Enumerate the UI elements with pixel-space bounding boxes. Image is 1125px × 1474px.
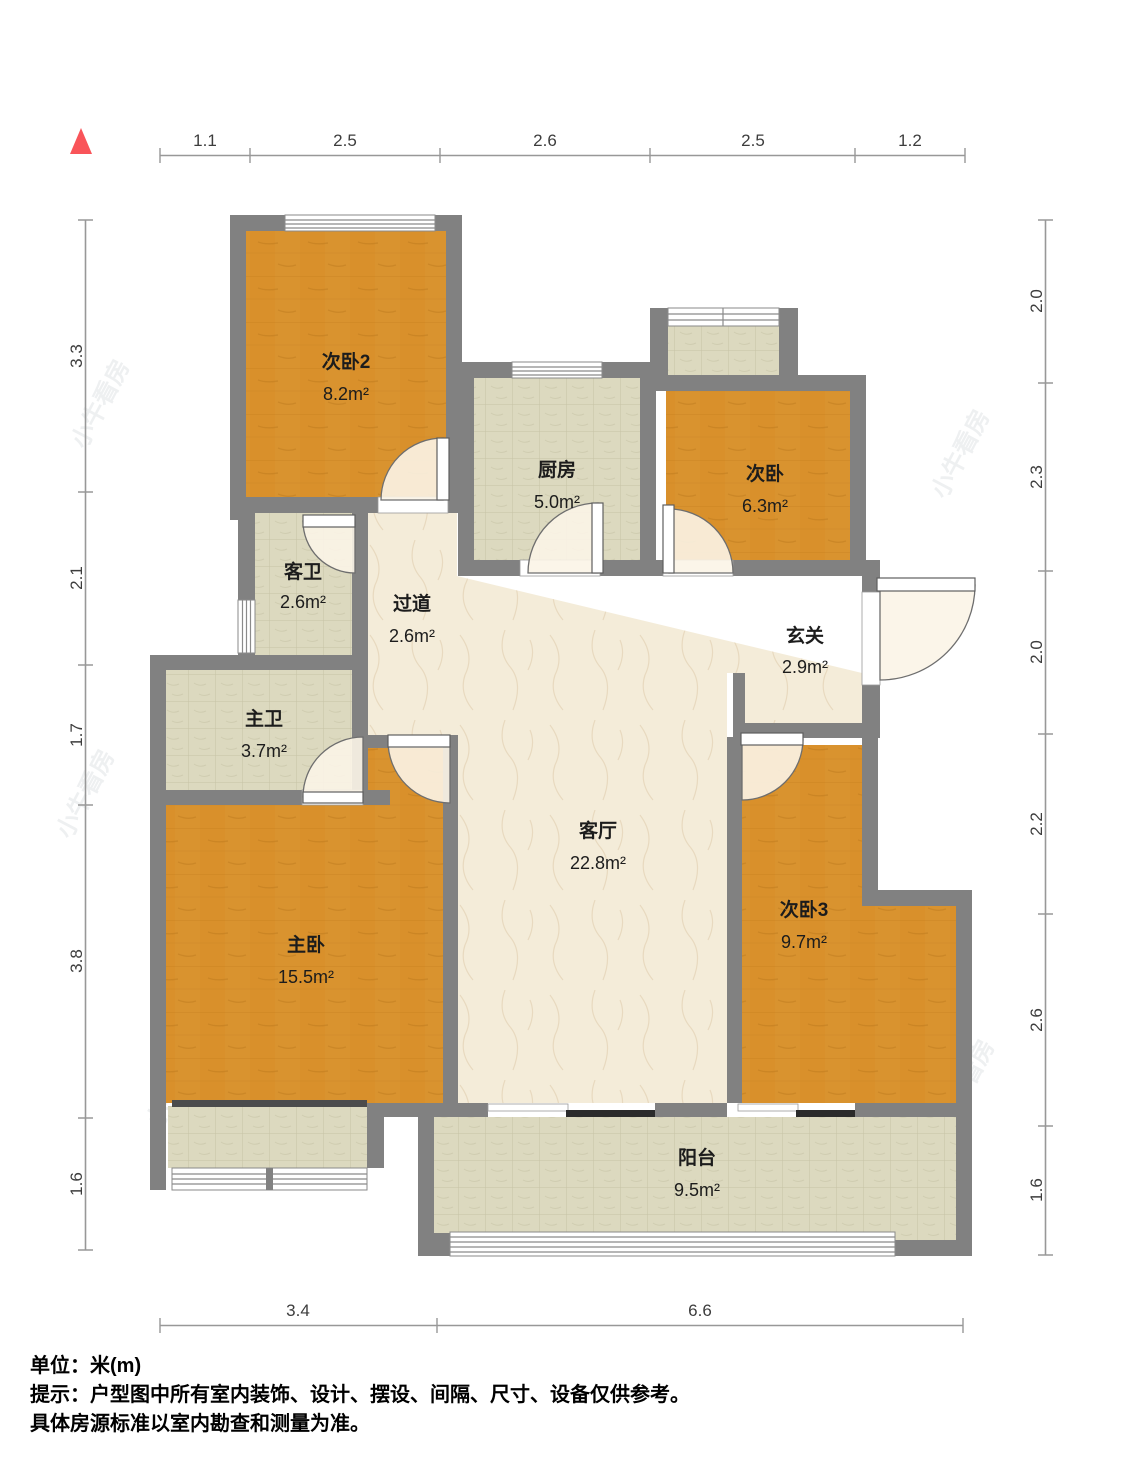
dim-top-1: 2.5 bbox=[333, 131, 357, 150]
room-label-hallway: 过道 bbox=[393, 592, 431, 615]
room-label-balcony: 阳台 bbox=[678, 1146, 716, 1169]
room-area-bedroom2: 8.2m² bbox=[323, 384, 369, 404]
dim-left-0: 3.3 bbox=[67, 344, 86, 368]
dim-top-3: 2.5 bbox=[741, 131, 765, 150]
room-area-bedroom: 6.3m² bbox=[742, 496, 788, 516]
room-area-hallway: 2.6m² bbox=[389, 626, 435, 646]
floorplan-svg: 小牛看房 小牛看房 小牛看房 小牛看房 小牛看房 小牛看房 小牛看房 小牛看房 bbox=[0, 0, 1125, 1474]
room-label-bedroom: 次卧 bbox=[746, 462, 784, 485]
window-bedroom2 bbox=[285, 215, 435, 231]
window-guest-bath bbox=[238, 600, 255, 653]
north-triangle-icon bbox=[70, 128, 92, 154]
dim-top-2: 2.6 bbox=[533, 131, 557, 150]
room-area-guest-bath: 2.6m² bbox=[280, 592, 326, 612]
room-label-master: 主卧 bbox=[287, 934, 325, 956]
room-entry-lower bbox=[745, 673, 862, 723]
room-area-bedroom3: 9.7m² bbox=[781, 932, 827, 952]
dimension-bottom: 3.4 6.6 bbox=[160, 1301, 963, 1333]
dim-bottom-1: 6.6 bbox=[688, 1301, 712, 1320]
room-area-kitchen: 5.0m² bbox=[534, 492, 580, 512]
floorplan-page: 小牛看房 小牛看房 小牛看房 小牛看房 小牛看房 小牛看房 小牛看房 小牛看房 bbox=[0, 0, 1125, 1474]
dim-left-1: 2.1 bbox=[67, 566, 86, 590]
room-area-entry: 2.9m² bbox=[782, 657, 828, 677]
dimension-right: 2.0 2.3 2.0 2.2 2.6 1.6 bbox=[1027, 220, 1053, 1255]
watermark: 小牛看房 bbox=[926, 405, 996, 503]
room-label-kitchen: 厨房 bbox=[538, 458, 576, 481]
window-kitchen bbox=[512, 362, 602, 378]
door-entrance bbox=[862, 578, 975, 685]
room-label-entry: 玄关 bbox=[786, 624, 824, 647]
bay-floor bbox=[168, 1106, 367, 1168]
room-label-master-bath: 主卫 bbox=[245, 708, 283, 730]
dim-right-3: 2.2 bbox=[1027, 812, 1046, 836]
room-area-living: 22.8m² bbox=[570, 853, 626, 873]
footer-notes: 单位：米(m) 提示：户型图中所有室内装饰、设计、摆设、间隔、尺寸、设备仅供参考… bbox=[30, 1352, 1030, 1439]
dim-right-1: 2.3 bbox=[1027, 465, 1046, 489]
room-label-guest-bath: 客卫 bbox=[284, 560, 322, 583]
dim-right-0: 2.0 bbox=[1027, 289, 1046, 313]
dim-right-2: 2.0 bbox=[1027, 640, 1046, 664]
footer-tip: 提示：户型图中所有室内装饰、设计、摆设、间隔、尺寸、设备仅供参考。 bbox=[30, 1381, 1030, 1410]
room-area-balcony: 9.5m² bbox=[674, 1180, 720, 1200]
dim-top-0: 1.1 bbox=[193, 131, 217, 150]
window-balcony-rail bbox=[450, 1232, 895, 1256]
dim-right-4: 2.6 bbox=[1027, 1008, 1046, 1032]
watermark: 小牛看房 bbox=[66, 355, 136, 453]
room-hallway bbox=[368, 513, 457, 735]
room-balcony bbox=[434, 1117, 956, 1240]
footer-unit: 单位：米(m) bbox=[30, 1352, 1030, 1381]
dim-top-4: 1.2 bbox=[898, 131, 922, 150]
dimension-left: 3.3 2.1 1.7 3.8 1.6 bbox=[67, 220, 93, 1250]
room-label-bedroom2: 次卧2 bbox=[322, 350, 371, 373]
window-master-bay bbox=[172, 1168, 367, 1190]
room-label-living: 客厅 bbox=[579, 819, 617, 842]
dimension-top: 1.1 2.5 2.6 2.5 1.2 bbox=[160, 131, 965, 163]
dim-right-5: 1.6 bbox=[1027, 1178, 1046, 1202]
room-area-master: 15.5m² bbox=[278, 967, 334, 987]
footer-tip2: 具体房源标准以室内勘查和测量为准。 bbox=[30, 1410, 1030, 1439]
room-bedroom3 bbox=[742, 745, 956, 1103]
dim-left-2: 1.7 bbox=[67, 723, 86, 747]
room-label-bedroom3: 次卧3 bbox=[780, 898, 829, 921]
window-equipment-platform bbox=[668, 308, 779, 326]
room-area-master-bath: 3.7m² bbox=[241, 741, 287, 761]
dim-bottom-0: 3.4 bbox=[286, 1301, 310, 1320]
dim-left-3: 3.8 bbox=[67, 949, 86, 973]
dim-left-4: 1.6 bbox=[67, 1172, 86, 1196]
